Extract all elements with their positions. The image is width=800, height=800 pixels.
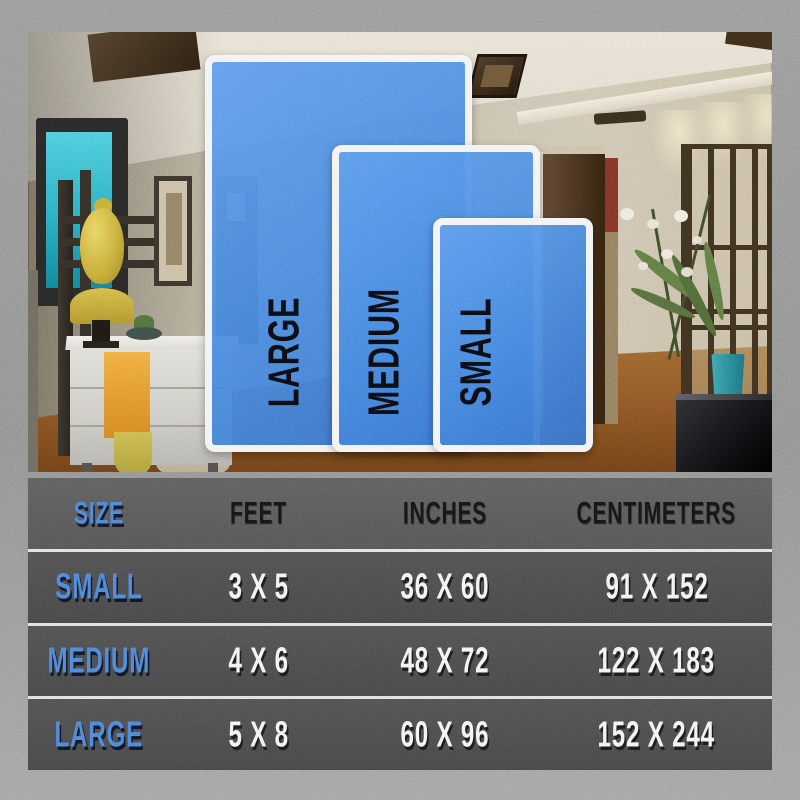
medium-centimeters-value: 122 X 183 — [598, 640, 715, 682]
table-row-small: SMALL 3 X 5 36 X 60 91 X 152 — [28, 552, 772, 626]
cell-size: LARGE — [28, 717, 169, 753]
rug-label-medium: MEDIUM — [360, 288, 409, 416]
header-cell-size: SIZE — [28, 498, 169, 529]
rug-label-large: LARGE — [260, 297, 309, 407]
header-size-label: SIZE — [74, 495, 124, 531]
cabinet-leg — [82, 463, 92, 472]
large-feet-value: 5 X 8 — [228, 714, 288, 756]
medium-size-label: MEDIUM — [47, 640, 150, 682]
large-size-label: LARGE — [54, 714, 143, 756]
buddha-statue-head — [80, 208, 124, 284]
buddha-statue-shoulders — [70, 288, 134, 324]
medium-feet-value: 4 X 6 — [228, 640, 288, 682]
picture-frame — [154, 176, 192, 286]
cell-centimeters: 122 X 183 — [541, 643, 772, 679]
cell-feet: 5 X 8 — [169, 717, 348, 753]
orchid-flowers — [620, 208, 634, 220]
door-trim — [605, 232, 618, 424]
cabinet-leg — [208, 463, 218, 472]
cell-centimeters: 91 X 152 — [541, 569, 772, 605]
header-feet-label: FEET — [230, 495, 287, 531]
cell-centimeters: 152 X 244 — [541, 717, 772, 753]
large-inches-value: 60 X 96 — [400, 714, 489, 756]
buddha-statue-base — [83, 341, 119, 348]
medium-inches-value: 48 X 72 — [400, 640, 489, 682]
table-row-large: LARGE 5 X 8 60 X 96 152 X 244 — [28, 699, 772, 770]
decor-bowl — [126, 327, 162, 340]
header-cell-centimeters: CENTIMETERS — [541, 498, 772, 529]
room-photo: LARGE MEDIUM SMALL — [28, 32, 772, 472]
table-header-row: SIZE FEET INCHES CENTIMETERS — [28, 478, 772, 552]
cell-inches: 36 X 60 — [348, 569, 541, 605]
small-size-label: SMALL — [55, 566, 142, 608]
large-centimeters-value: 152 X 244 — [598, 714, 715, 756]
table-row-medium: MEDIUM 4 X 6 48 X 72 122 X 183 — [28, 626, 772, 700]
rug-label-small: SMALL — [452, 298, 501, 407]
cloth-fold — [114, 432, 152, 472]
wall-edge — [28, 270, 38, 472]
orange-runner-cloth — [104, 352, 150, 438]
cell-inches: 48 X 72 — [348, 643, 541, 679]
cell-size: MEDIUM — [28, 643, 169, 679]
small-inches-value: 36 X 60 — [400, 566, 489, 608]
header-inches-label: INCHES — [402, 495, 486, 531]
black-media-cabinet — [676, 394, 772, 472]
small-centimeters-value: 91 X 152 — [605, 566, 708, 608]
cell-feet: 3 X 5 — [169, 569, 348, 605]
header-cell-inches: INCHES — [348, 498, 541, 529]
red-door-panel — [605, 158, 618, 232]
cell-inches: 60 X 96 — [348, 717, 541, 753]
ceiling-light-panel — [480, 65, 513, 87]
size-table: SIZE FEET INCHES CENTIMETERS SMALL 3 X 5… — [28, 478, 772, 770]
cabinet-glossy-top — [676, 394, 772, 400]
cell-feet: 4 X 6 — [169, 643, 348, 679]
lattice-crossbar — [686, 325, 767, 330]
picture-art — [166, 193, 182, 265]
small-feet-value: 3 X 5 — [228, 566, 288, 608]
header-cell-feet: FEET — [169, 498, 348, 529]
header-centimeters-label: CENTIMETERS — [577, 495, 737, 531]
cell-size: SMALL — [28, 569, 169, 605]
rug-size-guide: LARGE MEDIUM SMALL SIZE FEET INCHES CENT… — [0, 0, 800, 800]
